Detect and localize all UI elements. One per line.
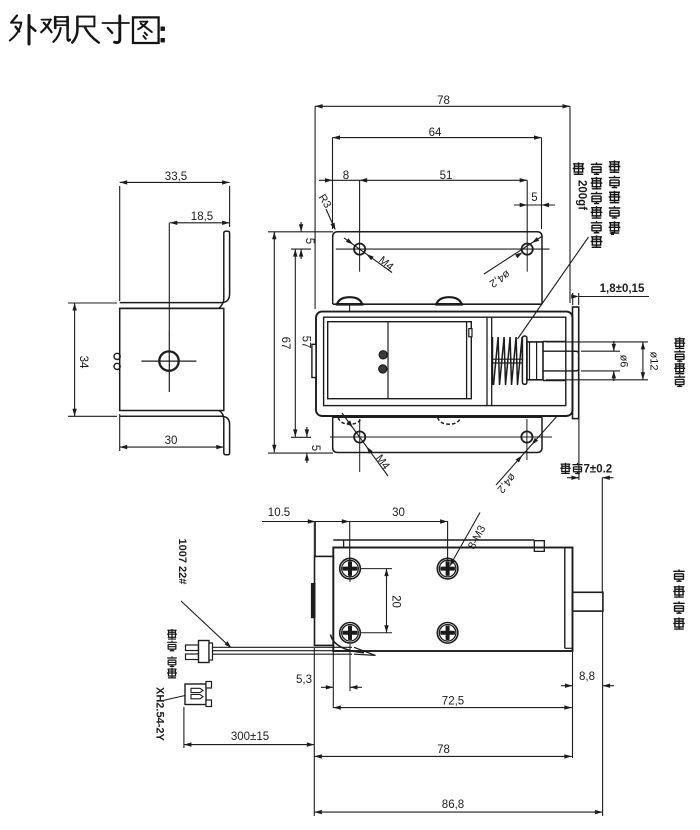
svg-text:ø6: ø6 <box>618 355 630 368</box>
svg-text:300±15: 300±15 <box>231 731 269 743</box>
svg-text:30: 30 <box>392 507 405 519</box>
svg-text:72,5: 72,5 <box>442 696 464 708</box>
svg-text:1007 22#: 1007 22# <box>176 539 188 585</box>
svg-text:78: 78 <box>437 744 450 756</box>
svg-text:57: 57 <box>300 336 312 349</box>
svg-text:8,8: 8,8 <box>579 671 595 683</box>
svg-text:1,8±0,15: 1,8±0,15 <box>600 283 645 295</box>
svg-text:86,8: 86,8 <box>442 799 464 811</box>
svg-text:5,3: 5,3 <box>296 674 312 686</box>
svg-text:10.5: 10.5 <box>268 507 290 519</box>
svg-text:34: 34 <box>77 356 89 369</box>
svg-text:67: 67 <box>279 337 291 350</box>
svg-text:18,5: 18,5 <box>191 211 213 223</box>
svg-text:ø12: ø12 <box>648 352 660 371</box>
svg-text:20: 20 <box>390 595 402 608</box>
svg-text:5: 5 <box>309 445 321 451</box>
svg-text:78: 78 <box>437 95 450 107</box>
svg-text:200gf: 200gf <box>576 180 588 210</box>
svg-text:33,5: 33,5 <box>165 171 187 183</box>
svg-text:30: 30 <box>165 435 178 447</box>
svg-text:5: 5 <box>303 238 315 244</box>
svg-text:XH2.54-2Y: XH2.54-2Y <box>154 687 166 741</box>
svg-text:5: 5 <box>531 192 537 204</box>
svg-text:7±0.2: 7±0.2 <box>584 464 613 476</box>
